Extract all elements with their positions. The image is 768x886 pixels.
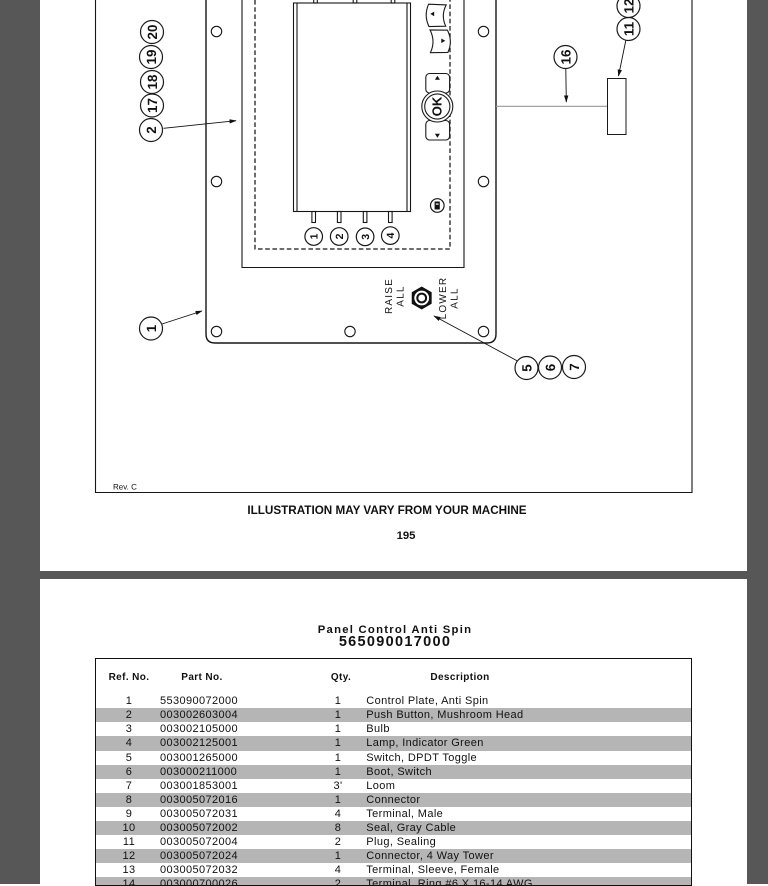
svg-text:5: 5 [519,364,534,372]
svg-text:7: 7 [567,363,582,370]
svg-text:Rev. C: Rev. C [113,483,137,492]
svg-text:17: 17 [145,98,160,113]
svg-text:ALL: ALL [450,287,461,308]
svg-text:OK: OK [430,96,445,116]
svg-text:3: 3 [360,234,372,240]
svg-text:20: 20 [145,25,160,40]
svg-text:6: 6 [543,364,558,371]
svg-text:12: 12 [621,0,636,13]
svg-text:4: 4 [385,233,397,239]
svg-text:ALL: ALL [396,285,407,306]
svg-text:LOWER: LOWER [438,277,449,320]
svg-text:16: 16 [558,50,573,65]
svg-text:2: 2 [144,126,159,133]
svg-text:RAISE: RAISE [384,278,395,314]
svg-text:19: 19 [144,50,159,65]
svg-text:18: 18 [145,74,160,89]
svg-text:1: 1 [309,233,321,239]
svg-text:1: 1 [144,324,159,332]
svg-text:2: 2 [334,233,346,239]
svg-text:11: 11 [621,21,636,36]
